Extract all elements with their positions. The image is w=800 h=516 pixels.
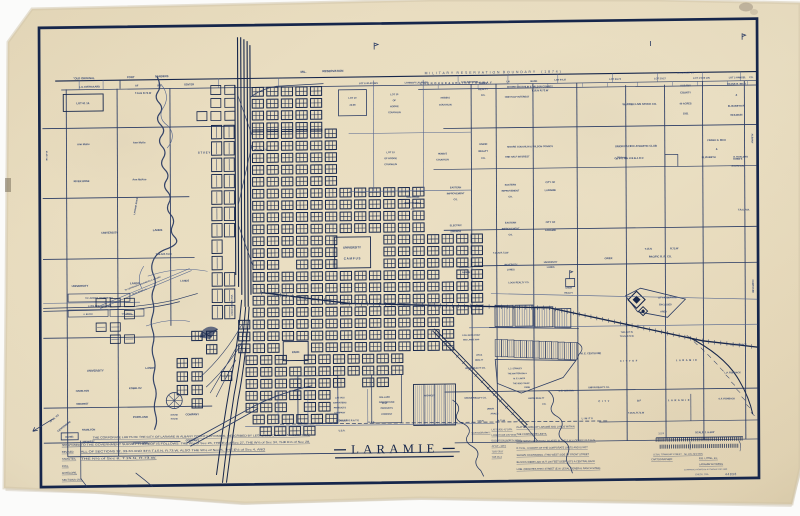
svg-text:LOT 61 14.: LOT 61 14. — [76, 101, 90, 105]
svg-text:23.98: 23.98 — [350, 104, 357, 107]
svg-text:THE 35.3: THE 35.3 — [492, 456, 503, 459]
svg-text:7165′-35.6′: 7165′-35.6′ — [492, 450, 504, 453]
svg-text:CARTOGRAPHY:: CARTOGRAPHY: — [472, 431, 491, 434]
svg-text:L I M I T S: L I M I T S — [582, 417, 593, 420]
svg-text:LN: LN — [506, 80, 509, 83]
svg-text:SPRINGS: SPRINGS — [450, 230, 461, 233]
svg-text:OF HODGE: OF HODGE — [384, 157, 397, 160]
svg-text:Op B E N H U B B A R D: Op B E N H U B B A R D — [614, 156, 643, 160]
svg-text:L A R A M I E: L A R A M I E — [676, 359, 698, 362]
svg-text:UNIVERSITY: UNIVERSITY — [87, 368, 104, 372]
svg-text:FRANK R. RICH: FRANK R. RICH — [727, 83, 746, 86]
svg-text:Ann McKe: Ann McKe — [133, 140, 146, 144]
svg-text:REALTY: REALTY — [475, 359, 484, 362]
svg-text:LOT 10: LOT 10 — [390, 93, 399, 96]
svg-text:STATUTES,: STATUTES, — [62, 457, 77, 461]
svg-text:LONGITUDE 105°35′W.: LONGITUDE 105°35′W. — [492, 434, 518, 437]
svg-text:CENTER: CENTER — [184, 83, 194, 86]
svg-text:M. E. CENTLIVRE: M. E. CENTLIVRE — [581, 352, 602, 355]
svg-text:SCALE: 1 in 600′: SCALE: 1 in 600′ — [695, 431, 715, 434]
svg-text:RY. OF W: RY. OF W — [47, 150, 49, 161]
svg-text:9.37: 9.37 — [561, 78, 566, 81]
svg-text:HOBB’S: HOBB’S — [438, 152, 448, 155]
svg-text:LANDS: LANDS — [547, 266, 555, 269]
svg-text:PACIFIC R. R. CO.: PACIFIC R. R. CO. — [649, 254, 672, 258]
svg-text:LOT 2 HANSEL: LOT 2 HANSEL — [729, 76, 747, 79]
svg-text:E.E. LITTEL, Inc.: E.E. LITTEL, Inc. — [699, 457, 718, 460]
svg-text:&: & — [735, 94, 737, 97]
svg-text:ANTELOPE,: ANTELOPE, — [62, 471, 77, 475]
svg-text:LANDS: LANDS — [153, 228, 163, 232]
svg-text:UNIVERSITY: UNIVERSITY — [101, 231, 118, 235]
svg-text:REALTY: REALTY — [564, 292, 573, 295]
svg-text:FORT: FORT — [127, 75, 135, 79]
svg-text:S.W.4 ROSS POINT: S.W.4 ROSS POINT — [462, 334, 481, 337]
svg-text:AREA: AREA — [660, 310, 667, 313]
svg-text:Ann McKe: Ann McKe — [77, 142, 90, 146]
svg-text:MOORE COUGHLIN & WILSON CONRO: MOORE COUGHLIN & WILSON CONROY — [507, 85, 553, 89]
svg-text:LARAMIE WYOMING: LARAMIE WYOMING — [699, 463, 723, 466]
svg-text:THE CORPORATE LIMITS.: THE CORPORATE LIMITS. — [516, 433, 547, 436]
svg-text:IMPROVEMENT: IMPROVEMENT — [502, 227, 520, 230]
svg-text:LOT 13: LOT 13 — [387, 151, 396, 154]
svg-text:ENCLOSED: ENCLOSED — [659, 304, 672, 306]
svg-text:LATITUDE 41°18′N.: LATITUDE 41°18′N. — [492, 428, 513, 431]
svg-text:MIDWEST: MIDWEST — [424, 395, 435, 397]
svg-text:FRANK D. RICH: FRANK D. RICH — [707, 139, 726, 142]
svg-text:LAS VGS: LAS VGS — [335, 396, 345, 399]
svg-text:UNION: UNION — [479, 143, 487, 146]
svg-text:6.74: 6.74 — [616, 78, 621, 81]
svg-text:EASTERN: EASTERN — [450, 186, 462, 189]
svg-text:"OLD ORIGINAL: "OLD ORIGINAL — [73, 76, 95, 80]
svg-text:L.P. FISHBACK: L.P. FISHBACK — [724, 371, 741, 374]
svg-text:GREENHOUSE: GREENHOUSE — [379, 402, 395, 404]
svg-text:WARREN LIVE STOCK CO.: WARREN LIVE STOCK CO. — [623, 102, 658, 106]
svg-text:IMPROVEMENT: IMPROVEMENT — [502, 189, 520, 192]
svg-text:LANDS: LANDS — [180, 279, 189, 283]
svg-text:44898: 44898 — [725, 472, 737, 476]
svg-text:RIVER ROSE: RIVER ROSE — [74, 179, 90, 183]
svg-text:ELIZABETH: ELIZABETH — [702, 156, 716, 159]
svg-text:40 ACRES: 40 ACRES — [680, 102, 692, 105]
svg-text:C A M P U S: C A M P U S — [344, 256, 361, 260]
svg-text:COMPANY: COMPANY — [185, 412, 199, 416]
svg-text:UNION: UNION — [479, 82, 487, 85]
svg-text:MOORE COUGHLIN & WILSON CO: MOORE COUGHLIN & WILSON CONROY — [507, 145, 553, 149]
svg-text:COMPANY: COMPANY — [334, 411, 346, 414]
svg-text:LOT 1 9.09 LIN: LOT 1 9.09 LIN — [693, 77, 710, 80]
svg-text:COUGHLIN: COUGHLIN — [436, 158, 449, 161]
svg-text:T.15.N: T.15.N — [477, 421, 484, 423]
svg-text:CHEROKEE: CHEROKEE — [751, 280, 754, 294]
svg-text:UNION PACIFIC ATHLETIC CLUB: UNION PACIFIC ATHLETIC CLUB — [615, 144, 657, 149]
svg-text:THE SIDE COURT: THE SIDE COURT — [513, 383, 531, 385]
svg-text:CO.: CO. — [749, 76, 754, 79]
svg-text:LARAMIE: LARAMIE — [351, 442, 439, 457]
svg-text:EASTERN: EASTERN — [505, 183, 517, 186]
svg-text:ALBANY: ALBANY — [751, 134, 754, 144]
svg-text:SEE WYOMING: SEE WYOMING — [62, 443, 82, 447]
svg-text:THE MASTERSON &: THE MASTERSON & — [508, 372, 528, 375]
svg-text:COUGHLIN: COUGHLIN — [388, 111, 401, 114]
svg-text:A. BLOCK: A. BLOCK — [83, 313, 93, 316]
svg-text:LARAMIE: LARAMIE — [545, 189, 557, 192]
svg-text:COUNTY: COUNTY — [680, 90, 691, 94]
svg-text:CARTOGRAPHER:: CARTOGRAPHER: — [651, 458, 673, 461]
svg-text:LOT 10: LOT 10 — [348, 97, 357, 100]
svg-text:U.S.A.: U.S.A. — [339, 429, 346, 432]
svg-text:CO.: CO. — [481, 94, 486, 97]
svg-text:CITY OF: CITY OF — [546, 221, 556, 224]
svg-text:GRIER: GRIER — [605, 257, 613, 260]
svg-text:REALTY: REALTY — [478, 150, 488, 153]
svg-text:LOT 6 40 ACRES: LOT 6 40 ACRES — [359, 82, 378, 85]
svg-text:HOUSE: HOUSE — [171, 418, 179, 420]
svg-text:CO.: CO. — [542, 404, 546, 406]
svg-text:&: & — [716, 148, 718, 151]
svg-text:T.16.N R.73.W: T.16.N R.73.W — [135, 92, 152, 95]
svg-text:UNION REALTY CO.: UNION REALTY CO. — [465, 367, 486, 370]
svg-text:1 2 3: 1 2 3 — [658, 432, 664, 435]
svg-text:CO.: CO. — [508, 195, 513, 198]
svg-text:R.72.W: R.72.W — [670, 247, 679, 250]
svg-text:1931,: 1931, — [62, 464, 69, 468]
svg-text:COUGHLIN: COUGHLIN — [439, 103, 452, 106]
svg-text:GROSS REALTY CO.: GROSS REALTY CO. — [464, 397, 487, 400]
svg-text:PRODUCTS: PRODUCTS — [381, 408, 394, 410]
svg-text:ELIZABETH R.: ELIZABETH R. — [728, 105, 745, 108]
svg-text:CHALK BLW LN: CHALK BLW LN — [677, 71, 694, 74]
svg-text:C O R P O R A T E: C O R P O R A T E — [339, 419, 360, 422]
svg-text:41°18′ - 105°): 41°18′ - 105°) — [492, 445, 507, 448]
svg-text:ELECTRIC: ELECTRIC — [450, 224, 462, 227]
svg-text:BALLARD: BALLARD — [379, 396, 390, 399]
svg-text:CO.: CO. — [453, 198, 458, 201]
svg-text:CO.: CO. — [411, 209, 415, 211]
svg-text:MIDWEST: MIDWEST — [76, 402, 89, 406]
svg-text:NOTE:: NOTE: — [66, 435, 74, 439]
svg-text:L.U.OVERGAARD: L.U.OVERGAARD — [79, 85, 100, 88]
svg-text:UNION REALTY CO.: UNION REALTY CO. — [588, 386, 610, 389]
svg-text:SECTIONS-1931: SECTIONS-1931 — [62, 478, 83, 482]
svg-text:OF: OF — [393, 99, 397, 102]
svg-text:L A R A M I E: L A R A M I E — [668, 398, 690, 402]
svg-text:UNIVERSITY: UNIVERSITY — [343, 245, 361, 249]
svg-text:MIL.: MIL. — [300, 70, 306, 74]
svg-text:ONE HALF INTEREST: ONE HALF INTEREST — [505, 155, 530, 158]
svg-text:O F: O F — [637, 399, 642, 403]
svg-text:EXPANTERS: EXPANTERS — [333, 401, 347, 404]
svg-text:LANDS: LANDS — [507, 268, 515, 271]
svg-text:9.27: 9.27 — [661, 77, 666, 80]
svg-text:M. E. LIMITS: M. E. LIMITS — [513, 378, 525, 380]
svg-text:CHOR: CHOR — [565, 288, 572, 290]
svg-text:UNIVERSITY: UNIVERSITY — [72, 284, 89, 288]
svg-text:UNION REALTY: UNION REALTY — [528, 397, 545, 400]
svg-text:T.15.N: T.15.N — [645, 248, 652, 251]
svg-text:PARK: PARK — [292, 350, 300, 354]
svg-text:HAMILTON: HAMILTON — [76, 389, 90, 393]
svg-text:COUGHLIN: COUGHLIN — [384, 163, 397, 166]
svg-text:PRODUCTS: PRODUCTS — [334, 407, 347, 409]
svg-text:CO.: CO. — [481, 157, 486, 160]
svg-text:PARK: PARK — [524, 386, 530, 389]
svg-text:C I T Y: C I T Y — [598, 399, 609, 403]
svg-text:HODGE: HODGE — [390, 105, 399, 108]
svg-text:D.E. CERTIVA: D.E. CERTIVA — [559, 389, 574, 392]
svg-text:LANDS: LANDS — [145, 366, 155, 370]
svg-text:G.F. FISHBACK: G.F. FISHBACK — [730, 343, 747, 346]
svg-text:ONE HALF INTEREST: ONE HALF INTEREST — [505, 95, 530, 98]
svg-text:HAMILTON: HAMILTON — [82, 428, 96, 432]
svg-text:LANDS: LANDS — [462, 271, 470, 274]
svg-text:REALTY: REALTY — [478, 88, 488, 91]
svg-text:SEE LARGE MAP: SEE LARGE MAP — [463, 338, 480, 341]
svg-text:LOOK REALTY CO.: LOOK REALTY CO. — [508, 281, 529, 284]
svg-text:BANK: BANK — [530, 80, 537, 83]
svg-text:Ann McKee: Ann McKee — [132, 177, 147, 181]
svg-text:CO.: CO. — [508, 233, 513, 236]
svg-text:CHECK. TRA.: CHECK. TRA. — [695, 473, 709, 476]
svg-text:S T U E Y: S T U E Y — [198, 150, 210, 154]
svg-text:UNIVERSITY: UNIVERSITY — [544, 262, 558, 264]
svg-text:T.15.N, R.72.W: T.15.N, R.72.W — [628, 411, 645, 414]
svg-text:OF: OF — [135, 84, 139, 87]
svg-text:L.J. STANLEY: L.J. STANLEY — [508, 367, 522, 370]
svg-text:COMPANY: COMPANY — [381, 413, 393, 416]
svg-text:KOBELITZ: KOBELITZ — [129, 386, 142, 390]
svg-text:C I T Y O F: C I T Y O F — [620, 360, 638, 363]
svg-text:UNION: UNION — [487, 408, 494, 410]
svg-text:PORTLAND: PORTLAND — [133, 415, 148, 419]
svg-text:IMPROVEMENT: IMPROVEMENT — [447, 192, 465, 195]
svg-text:CITY OF: CITY OF — [545, 181, 555, 184]
svg-text:RESERVATION: RESERVATION — [322, 69, 343, 73]
svg-text:T.R.S. R.R.: T.R.S. R.R. — [738, 208, 750, 211]
svg-text:EASTERN: EASTERN — [505, 221, 517, 224]
svg-text:HOBB’S: HOBB’S — [441, 96, 451, 99]
svg-text:UNION PACIFIC R.R.: UNION PACIFIC R.R. — [231, 294, 234, 316]
svg-text:G.F. FISHBACK: G.F. FISHBACK — [718, 397, 735, 400]
svg-text:1921: 1921 — [683, 112, 689, 115]
svg-text:ARACS: ARACS — [491, 412, 499, 415]
svg-text:THIS LOT IN: THIS LOT IN — [621, 332, 634, 334]
svg-text:R.73.W: R.73.W — [498, 420, 506, 422]
svg-text:TO LARAMIE, THORNBURG: TO LARAMIE, THORNBURG — [85, 296, 113, 299]
svg-text:ALBANY: ALBANY — [680, 83, 691, 87]
svg-text:T.15.N, R.72.W: T.15.N, R.72.W — [620, 336, 634, 338]
svg-text:UNIVERSITY: UNIVERSITY — [504, 264, 518, 266]
svg-text:(COMPANY) THOMPSON & COMPANY: (COMPANY) THOMPSON & COMPANY 1927-1928 — [684, 468, 727, 472]
svg-text:HOBB’S: HOBB’S — [733, 158, 743, 161]
svg-text:ROUND: ROUND — [171, 414, 179, 416]
svg-text:McILWAIN: McILWAIN — [730, 114, 742, 117]
svg-text:LARAMIE: LARAMIE — [545, 229, 557, 232]
svg-text:REVISED: REVISED — [62, 450, 74, 454]
svg-text:COUGHLIN: COUGHLIN — [731, 165, 744, 168]
svg-text:T.15.N R.73.W: T.15.N R.73.W — [493, 251, 509, 254]
svg-text:T.16.N R.73.W: T.16.N R.73.W — [532, 88, 549, 92]
svg-text:CHOA: CHOA — [476, 354, 483, 357]
